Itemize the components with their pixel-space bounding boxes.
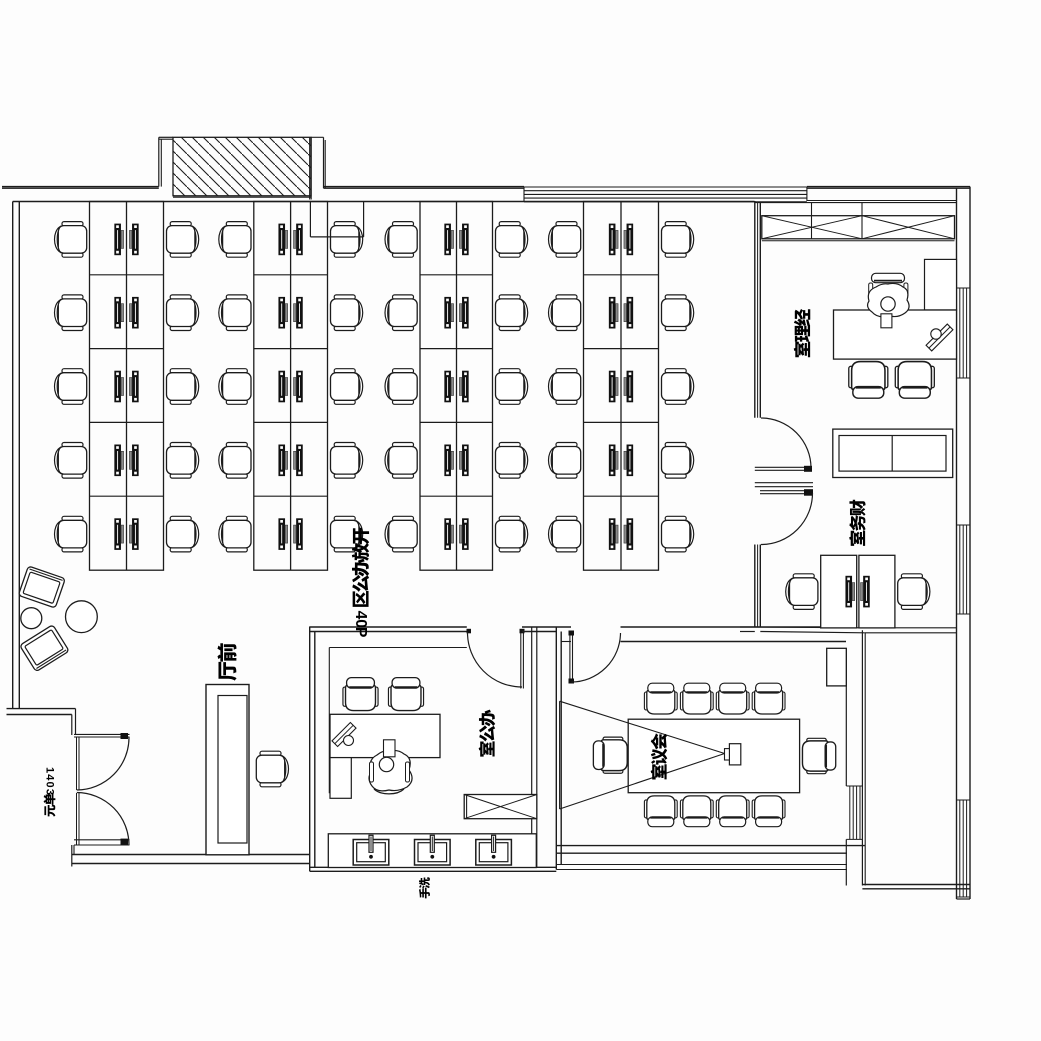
svg-text:3: 3: [44, 789, 56, 795]
svg-text:0: 0: [44, 782, 56, 788]
svg-text:1: 1: [44, 767, 56, 773]
svg-text:P: P: [352, 627, 369, 638]
svg-text:4: 4: [44, 774, 56, 781]
